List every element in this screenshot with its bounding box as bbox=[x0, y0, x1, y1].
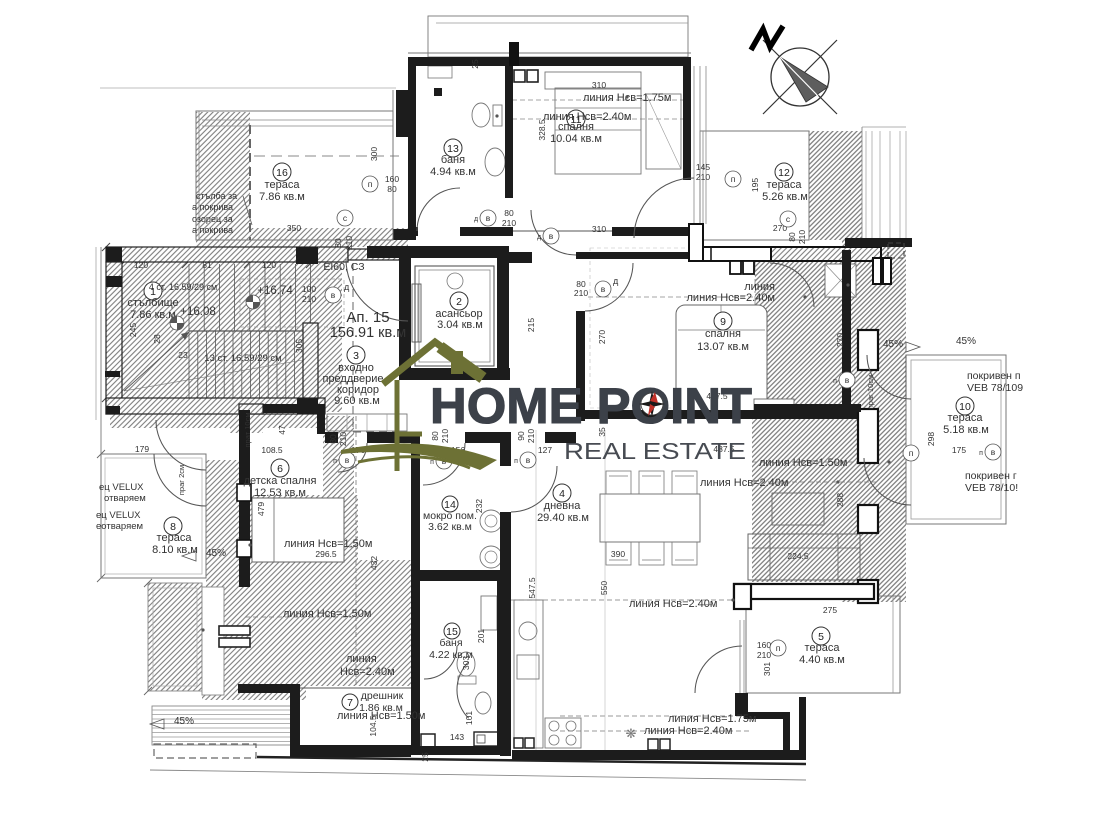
svg-text:8: 8 bbox=[170, 521, 176, 533]
svg-text:45%: 45% bbox=[883, 339, 903, 350]
svg-text:12: 12 bbox=[778, 167, 790, 179]
svg-text:+16.08: +16.08 bbox=[180, 306, 216, 318]
svg-text:4.40 кв.м: 4.40 кв.м bbox=[799, 654, 845, 666]
svg-text:80: 80 bbox=[387, 184, 397, 194]
svg-text:праг 2см: праг 2см bbox=[177, 465, 186, 495]
svg-text:8.10 кв.м: 8.10 кв.м bbox=[152, 544, 198, 556]
svg-text:п: п bbox=[979, 450, 983, 457]
svg-text:301: 301 bbox=[762, 662, 772, 676]
svg-text:п: п bbox=[368, 179, 373, 189]
svg-text:ЕІ60, СЗ: ЕІ60, СЗ bbox=[323, 261, 364, 273]
svg-text:550: 550 bbox=[599, 581, 609, 595]
svg-text:15: 15 bbox=[446, 626, 458, 638]
svg-text:28: 28 bbox=[152, 334, 162, 344]
svg-text:Нсв=2.40м: Нсв=2.40м bbox=[340, 666, 395, 678]
svg-text:305: 305 bbox=[294, 339, 304, 353]
svg-text:баня: баня bbox=[441, 154, 465, 166]
svg-text:13 ст. 16.59/29 см: 13 ст. 16.59/29 см bbox=[204, 353, 281, 364]
svg-text:100: 100 bbox=[302, 284, 316, 294]
svg-text:линия Нсв=1.50м: линия Нсв=1.50м bbox=[759, 457, 847, 469]
svg-text:328.5: 328.5 bbox=[537, 119, 547, 141]
svg-text:245: 245 bbox=[128, 323, 138, 337]
svg-text:160: 160 bbox=[757, 640, 771, 650]
svg-text:210: 210 bbox=[797, 230, 807, 244]
svg-text:в: в bbox=[845, 375, 850, 385]
svg-text:127: 127 bbox=[538, 445, 552, 455]
svg-text:4: 4 bbox=[559, 488, 565, 500]
svg-text:4 ст. 16.59/29 см: 4 ст. 16.59/29 см bbox=[149, 282, 217, 292]
svg-text:210: 210 bbox=[574, 288, 588, 298]
svg-text:160: 160 bbox=[385, 174, 399, 184]
svg-text:покривен г: покривен г bbox=[965, 470, 1017, 482]
svg-text:линия Нсв=1.50м: линия Нсв=1.50м bbox=[283, 608, 371, 620]
svg-text:210: 210 bbox=[302, 294, 316, 304]
svg-text:215: 215 bbox=[526, 318, 536, 332]
svg-text:д: д bbox=[344, 282, 350, 292]
svg-text:5.18 кв.м: 5.18 кв.м bbox=[943, 424, 989, 436]
svg-text:тераса: тераса bbox=[157, 532, 193, 544]
svg-text:озорец за: озорец за bbox=[192, 214, 233, 224]
svg-text:9: 9 bbox=[720, 316, 726, 328]
svg-text:270: 270 bbox=[835, 333, 845, 347]
svg-text:3.62 кв.м: 3.62 кв.м bbox=[428, 521, 472, 533]
svg-text:108.5: 108.5 bbox=[261, 445, 283, 455]
svg-text:п: п bbox=[333, 458, 337, 465]
svg-text:в: в bbox=[601, 284, 606, 294]
svg-text:12.53 кв.м: 12.53 кв.м bbox=[254, 487, 306, 499]
svg-text:201: 201 bbox=[476, 629, 486, 643]
svg-text:224.5: 224.5 bbox=[787, 551, 809, 561]
svg-text:179: 179 bbox=[135, 444, 149, 454]
svg-text:д: д bbox=[537, 234, 541, 241]
svg-text:спалня: спалня bbox=[705, 328, 741, 340]
svg-text:303: 303 bbox=[461, 656, 471, 670]
svg-text:210: 210 bbox=[344, 236, 354, 250]
svg-text:дневна: дневна bbox=[544, 500, 582, 512]
svg-text:дрешник: дрешник bbox=[361, 690, 404, 702]
svg-text:баня: баня bbox=[439, 637, 462, 649]
svg-text:195: 195 bbox=[750, 178, 760, 192]
svg-text:7.86 кв.м: 7.86 кв.м bbox=[130, 309, 176, 321]
svg-text:п: п bbox=[731, 174, 736, 184]
svg-text:10: 10 bbox=[959, 401, 971, 413]
svg-text:547.5: 547.5 bbox=[527, 577, 537, 599]
svg-text:23: 23 bbox=[178, 350, 188, 360]
svg-text:80: 80 bbox=[333, 238, 343, 248]
svg-text:25: 25 bbox=[470, 59, 480, 69]
svg-text:5.26 кв.м: 5.26 кв.м bbox=[762, 191, 808, 203]
svg-text:350: 350 bbox=[287, 223, 301, 233]
svg-text:13.07 кв.м: 13.07 кв.м bbox=[697, 341, 749, 353]
svg-text:VEB 78/109: VEB 78/109 bbox=[967, 382, 1023, 394]
svg-text:101: 101 bbox=[464, 711, 474, 725]
svg-text:линия Нсв=1.50м: линия Нсв=1.50м bbox=[337, 710, 425, 722]
svg-text:а покрива: а покрива bbox=[192, 202, 233, 212]
svg-text:432: 432 bbox=[369, 556, 379, 570]
svg-text:праг 10см: праг 10см bbox=[866, 375, 875, 409]
svg-text:3.04 кв.м: 3.04 кв.м bbox=[437, 319, 483, 331]
svg-text:45%: 45% bbox=[956, 336, 976, 347]
svg-text:п: п bbox=[430, 459, 434, 466]
svg-text:13: 13 bbox=[447, 143, 459, 155]
svg-text:300: 300 bbox=[369, 147, 379, 161]
svg-text:3: 3 bbox=[353, 350, 359, 362]
svg-text:в: в bbox=[526, 455, 531, 465]
svg-text:156.91 кв.м: 156.91 кв.м bbox=[330, 325, 406, 341]
svg-text:д: д bbox=[613, 276, 619, 286]
svg-text:тераса: тераса bbox=[805, 642, 841, 654]
svg-text:5: 5 bbox=[818, 631, 824, 643]
svg-text:296.5: 296.5 bbox=[315, 549, 337, 559]
svg-text:линия Нсв=2.40м: линия Нсв=2.40м bbox=[644, 725, 732, 737]
svg-text:линия Нсв=2.40м: линия Нсв=2.40м bbox=[543, 111, 631, 123]
svg-text:25: 25 bbox=[420, 752, 430, 762]
svg-text:479: 479 bbox=[256, 502, 266, 516]
svg-text:120: 120 bbox=[262, 260, 276, 270]
svg-text:390: 390 bbox=[611, 549, 625, 559]
svg-text:310: 310 bbox=[592, 80, 606, 90]
svg-text:45%: 45% bbox=[174, 716, 194, 727]
svg-text:9.60 кв.м: 9.60 кв.м bbox=[334, 395, 380, 407]
svg-text:310: 310 bbox=[592, 224, 606, 234]
svg-text:16: 16 bbox=[276, 167, 288, 179]
svg-text:в: в bbox=[345, 455, 350, 465]
svg-text:210: 210 bbox=[757, 650, 771, 660]
svg-text:145: 145 bbox=[696, 162, 710, 172]
svg-text:288: 288 bbox=[835, 493, 845, 507]
svg-text:47: 47 bbox=[277, 425, 287, 435]
svg-text:—: — bbox=[703, 599, 712, 609]
svg-text:линия Нсв=1.75м: линия Нсв=1.75м bbox=[668, 713, 756, 725]
svg-text:7.86 кв.м: 7.86 кв.м bbox=[259, 191, 305, 203]
svg-text:HOME POINT: HOME POINT bbox=[430, 378, 752, 434]
svg-text:120: 120 bbox=[134, 260, 148, 270]
svg-text:п: п bbox=[776, 643, 781, 653]
svg-text:отваряем: отваряем bbox=[104, 493, 146, 504]
svg-text:175: 175 bbox=[952, 445, 966, 455]
svg-text:д: д bbox=[474, 216, 478, 223]
svg-text:210: 210 bbox=[502, 218, 516, 228]
svg-text:линия Нсв=2.40м: линия Нсв=2.40м bbox=[687, 292, 775, 304]
svg-text:стълбище: стълбище bbox=[127, 297, 178, 309]
svg-text:в: в bbox=[486, 213, 491, 223]
svg-text:232: 232 bbox=[474, 499, 484, 513]
svg-text:45%: 45% bbox=[206, 548, 226, 559]
svg-text:детска спалня: детска спалня bbox=[244, 475, 317, 487]
svg-text:REAL ESTATE: REAL ESTATE bbox=[564, 438, 746, 464]
svg-text:тераса: тераса bbox=[948, 412, 984, 424]
svg-text:Ап. 15: Ап. 15 bbox=[346, 309, 389, 326]
svg-text:270: 270 bbox=[597, 330, 607, 344]
svg-text:п: п bbox=[514, 458, 518, 465]
svg-text:80: 80 bbox=[787, 232, 797, 242]
svg-text:линия: линия bbox=[346, 653, 377, 665]
svg-text:в: в bbox=[991, 447, 996, 457]
svg-text:2: 2 bbox=[456, 296, 462, 308]
svg-text:VEB 78/10!: VEB 78/10! bbox=[965, 482, 1018, 494]
svg-text:п: п bbox=[909, 448, 914, 458]
svg-text:в: в bbox=[549, 231, 554, 241]
svg-text:стълба за: стълба за bbox=[196, 191, 237, 201]
svg-text:покривен п: покривен п bbox=[967, 370, 1021, 382]
svg-text:тераса: тераса bbox=[767, 179, 803, 191]
svg-text:линия Нсв=2.40м: линия Нсв=2.40м bbox=[700, 477, 788, 489]
svg-text:прат 10см: прат 10см bbox=[243, 412, 252, 447]
svg-text:14: 14 bbox=[444, 499, 456, 511]
svg-text:29.40 кв.м: 29.40 кв.м bbox=[537, 512, 589, 524]
svg-text:80: 80 bbox=[328, 434, 338, 444]
svg-text:210: 210 bbox=[338, 432, 348, 446]
svg-text:81: 81 bbox=[202, 260, 212, 270]
svg-text:в: в bbox=[331, 290, 336, 300]
svg-text:275: 275 bbox=[823, 605, 837, 615]
svg-text:п: п bbox=[833, 378, 837, 385]
svg-text:298: 298 bbox=[926, 432, 936, 446]
svg-text:ец VELUX: ец VELUX bbox=[99, 482, 144, 493]
svg-text:тераса: тераса bbox=[265, 179, 301, 191]
svg-text:а покрива: а покрива bbox=[192, 225, 233, 235]
svg-text:❋: ❋ bbox=[626, 726, 637, 741]
svg-text:4.94 кв.м: 4.94 кв.м bbox=[430, 166, 476, 178]
svg-text:+16.74: +16.74 bbox=[257, 285, 293, 297]
svg-text:7: 7 bbox=[347, 697, 353, 709]
svg-text:6: 6 bbox=[277, 463, 283, 475]
svg-text:80: 80 bbox=[504, 208, 514, 218]
svg-text:143: 143 bbox=[450, 732, 464, 742]
svg-text:еотваряем: еотваряем bbox=[96, 521, 143, 532]
svg-text:210: 210 bbox=[696, 172, 710, 182]
svg-text:104.5: 104.5 bbox=[368, 715, 378, 737]
svg-text:10.04 кв.м: 10.04 кв.м bbox=[550, 133, 602, 145]
svg-text:ец VELUX: ец VELUX bbox=[96, 510, 141, 521]
